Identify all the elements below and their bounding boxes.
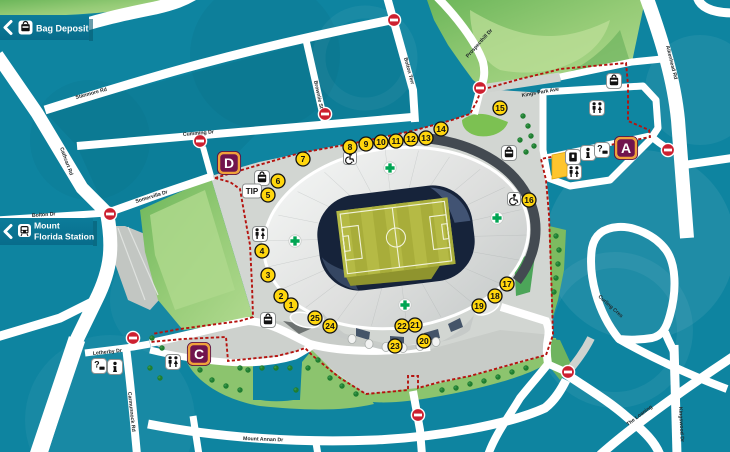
svg-text:12: 12 bbox=[406, 134, 416, 144]
svg-text:23: 23 bbox=[390, 341, 400, 351]
svg-text:TIP: TIP bbox=[246, 187, 259, 196]
svg-text:22: 22 bbox=[397, 321, 407, 331]
svg-text:16: 16 bbox=[524, 195, 534, 205]
svg-text:18: 18 bbox=[490, 291, 500, 301]
svg-text:4: 4 bbox=[260, 246, 265, 256]
svg-text:19: 19 bbox=[474, 301, 484, 311]
svg-text:2: 2 bbox=[279, 291, 284, 301]
svg-text:Bag Deposit: Bag Deposit bbox=[36, 24, 89, 34]
svg-text:6: 6 bbox=[276, 176, 281, 186]
svg-text:9: 9 bbox=[364, 139, 369, 149]
svg-text:Mount: Mount bbox=[34, 221, 60, 231]
svg-text:1: 1 bbox=[289, 300, 294, 310]
svg-text:8: 8 bbox=[348, 142, 353, 152]
svg-text:20: 20 bbox=[419, 336, 429, 346]
svg-text:Florida Station: Florida Station bbox=[34, 232, 94, 242]
svg-text:C: C bbox=[194, 346, 204, 362]
svg-text:15: 15 bbox=[495, 103, 505, 113]
svg-text:11: 11 bbox=[392, 136, 401, 146]
svg-text:7: 7 bbox=[301, 154, 306, 164]
svg-text:5: 5 bbox=[266, 190, 271, 200]
svg-text:D: D bbox=[224, 155, 234, 171]
svg-text:24: 24 bbox=[325, 321, 335, 331]
svg-text:21: 21 bbox=[410, 320, 420, 330]
svg-text:14: 14 bbox=[436, 124, 446, 134]
svg-text:3: 3 bbox=[266, 270, 271, 280]
svg-text:13: 13 bbox=[421, 133, 431, 143]
svg-text:25: 25 bbox=[310, 313, 320, 323]
svg-text:10: 10 bbox=[376, 137, 386, 147]
svg-text:A: A bbox=[621, 140, 631, 156]
svg-text:17: 17 bbox=[502, 279, 512, 289]
